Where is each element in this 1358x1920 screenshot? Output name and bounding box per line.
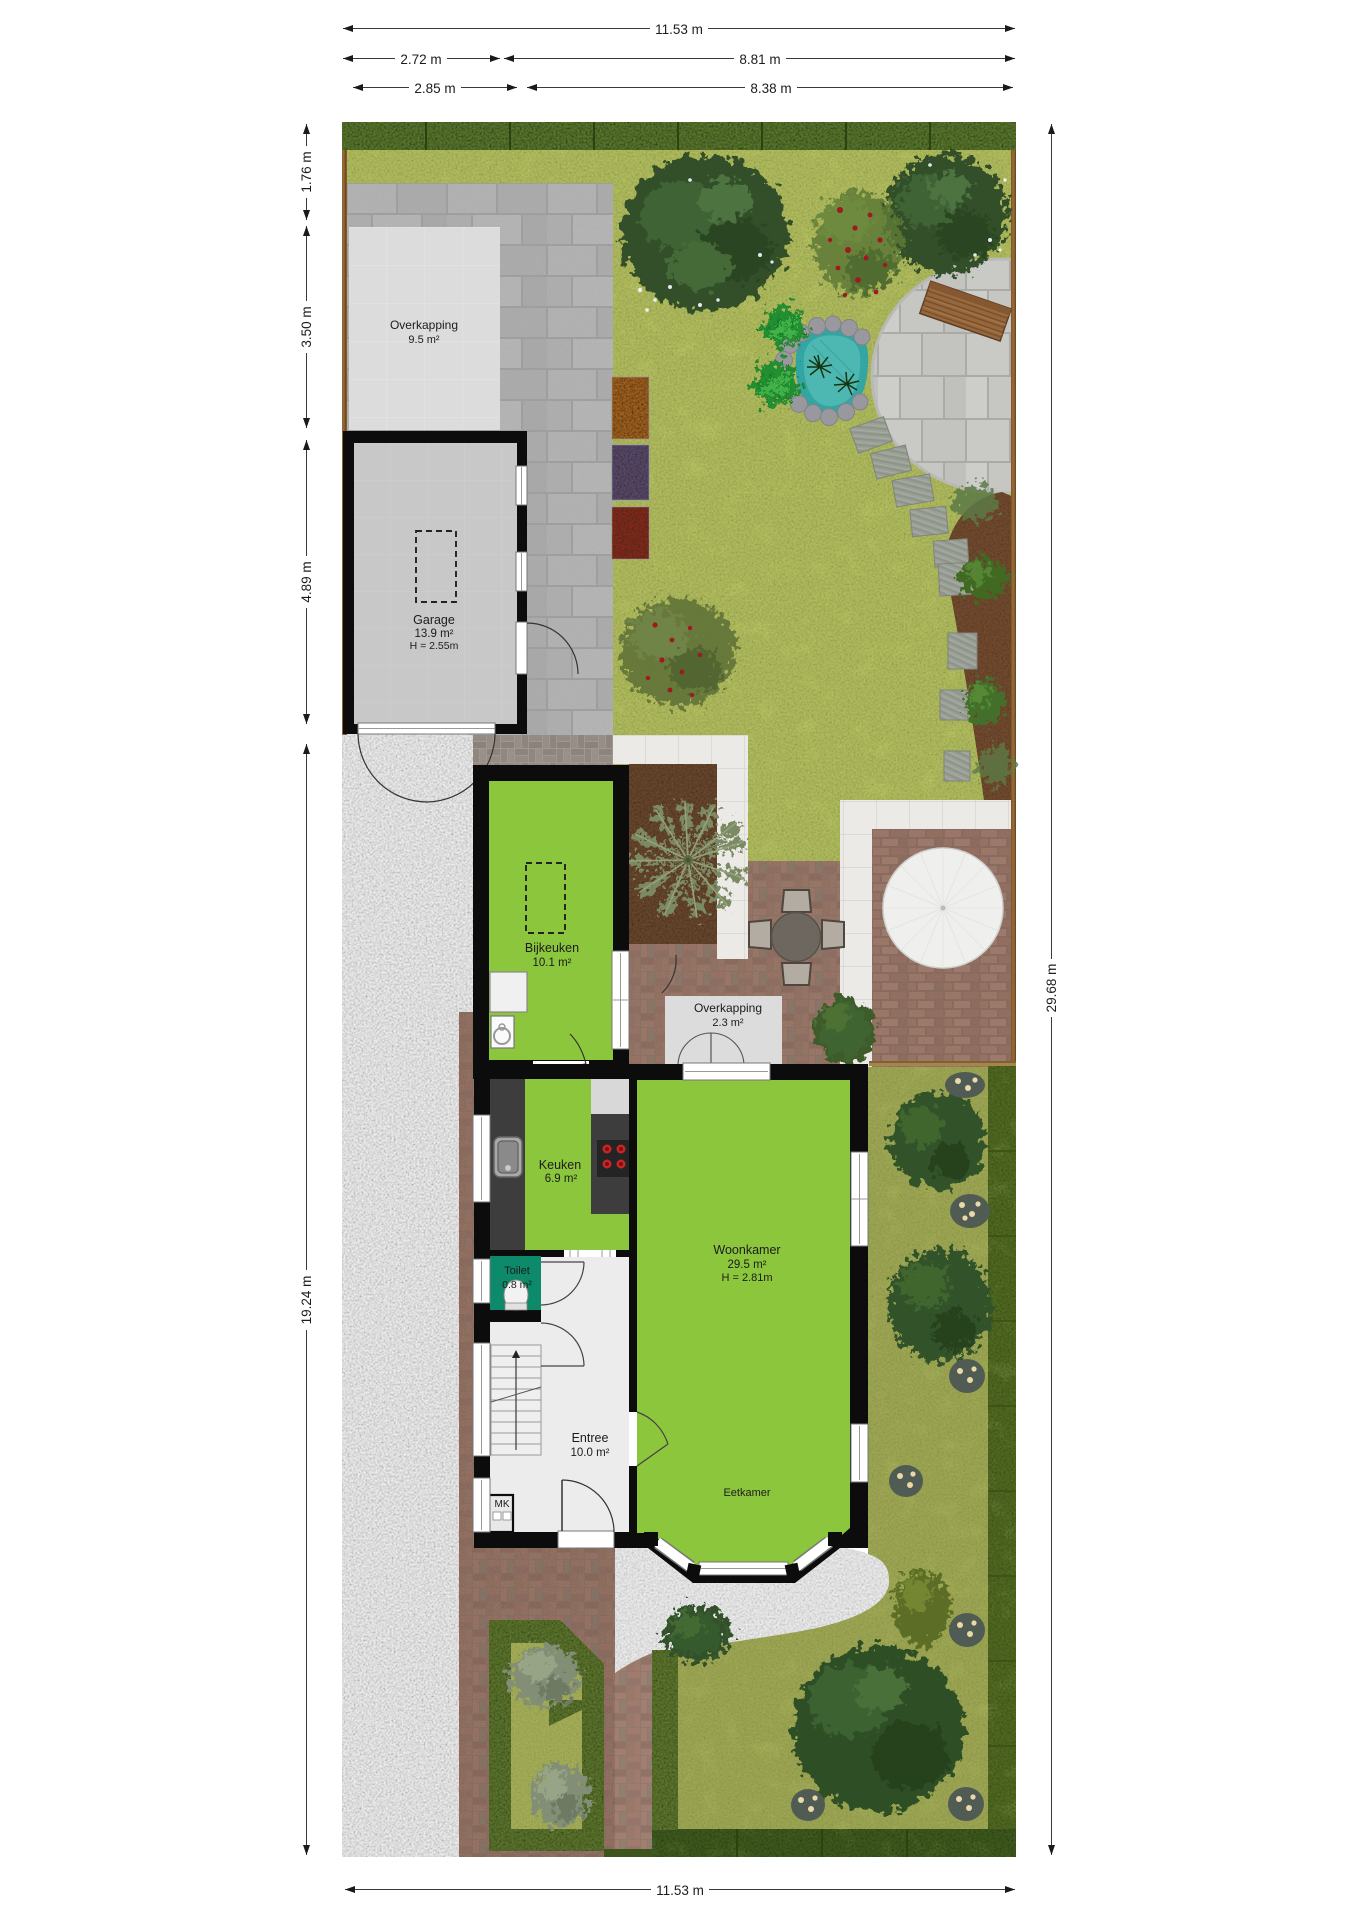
svg-text:10.0 m²: 10.0 m² [571, 1447, 610, 1459]
svg-text:8.81 m: 8.81 m [739, 52, 780, 67]
svg-text:Overkapping: Overkapping [694, 1001, 762, 1015]
svg-text:1.76 m: 1.76 m [299, 151, 314, 192]
svg-text:Eetkamer: Eetkamer [723, 1487, 770, 1499]
svg-text:H = 2.81m: H = 2.81m [721, 1272, 772, 1284]
svg-text:Woonkamer: Woonkamer [713, 1243, 780, 1257]
svg-text:Bijkeuken: Bijkeuken [525, 941, 579, 955]
svg-text:2.72 m: 2.72 m [400, 52, 441, 67]
svg-text:H = 2.55m: H = 2.55m [410, 640, 459, 652]
svg-text:8.38 m: 8.38 m [750, 81, 791, 96]
svg-text:29.68 m: 29.68 m [1044, 964, 1059, 1013]
svg-text:Keuken: Keuken [539, 1158, 581, 1172]
svg-text:MK: MK [495, 1499, 510, 1510]
svg-text:2.85 m: 2.85 m [414, 81, 455, 96]
svg-text:9.5 m²: 9.5 m² [408, 334, 440, 346]
svg-text:29.5 m²: 29.5 m² [728, 1259, 767, 1271]
svg-text:2.3 m²: 2.3 m² [712, 1017, 744, 1029]
svg-text:11.53 m: 11.53 m [655, 22, 703, 37]
svg-text:Overkapping: Overkapping [390, 318, 458, 332]
svg-text:Garage: Garage [413, 613, 455, 627]
svg-text:3.50 m: 3.50 m [299, 306, 314, 347]
svg-text:4.89 m: 4.89 m [299, 561, 314, 602]
svg-text:0.8 m²: 0.8 m² [502, 1279, 532, 1291]
svg-text:Toilet: Toilet [504, 1265, 530, 1277]
svg-text:6.9 m²: 6.9 m² [545, 1173, 578, 1185]
svg-text:19.24 m: 19.24 m [299, 1276, 314, 1325]
svg-text:Entree: Entree [572, 1431, 609, 1445]
svg-text:13.9 m²: 13.9 m² [415, 628, 454, 640]
svg-text:10.1 m²: 10.1 m² [533, 957, 572, 969]
svg-text:11.53 m: 11.53 m [656, 1883, 704, 1898]
